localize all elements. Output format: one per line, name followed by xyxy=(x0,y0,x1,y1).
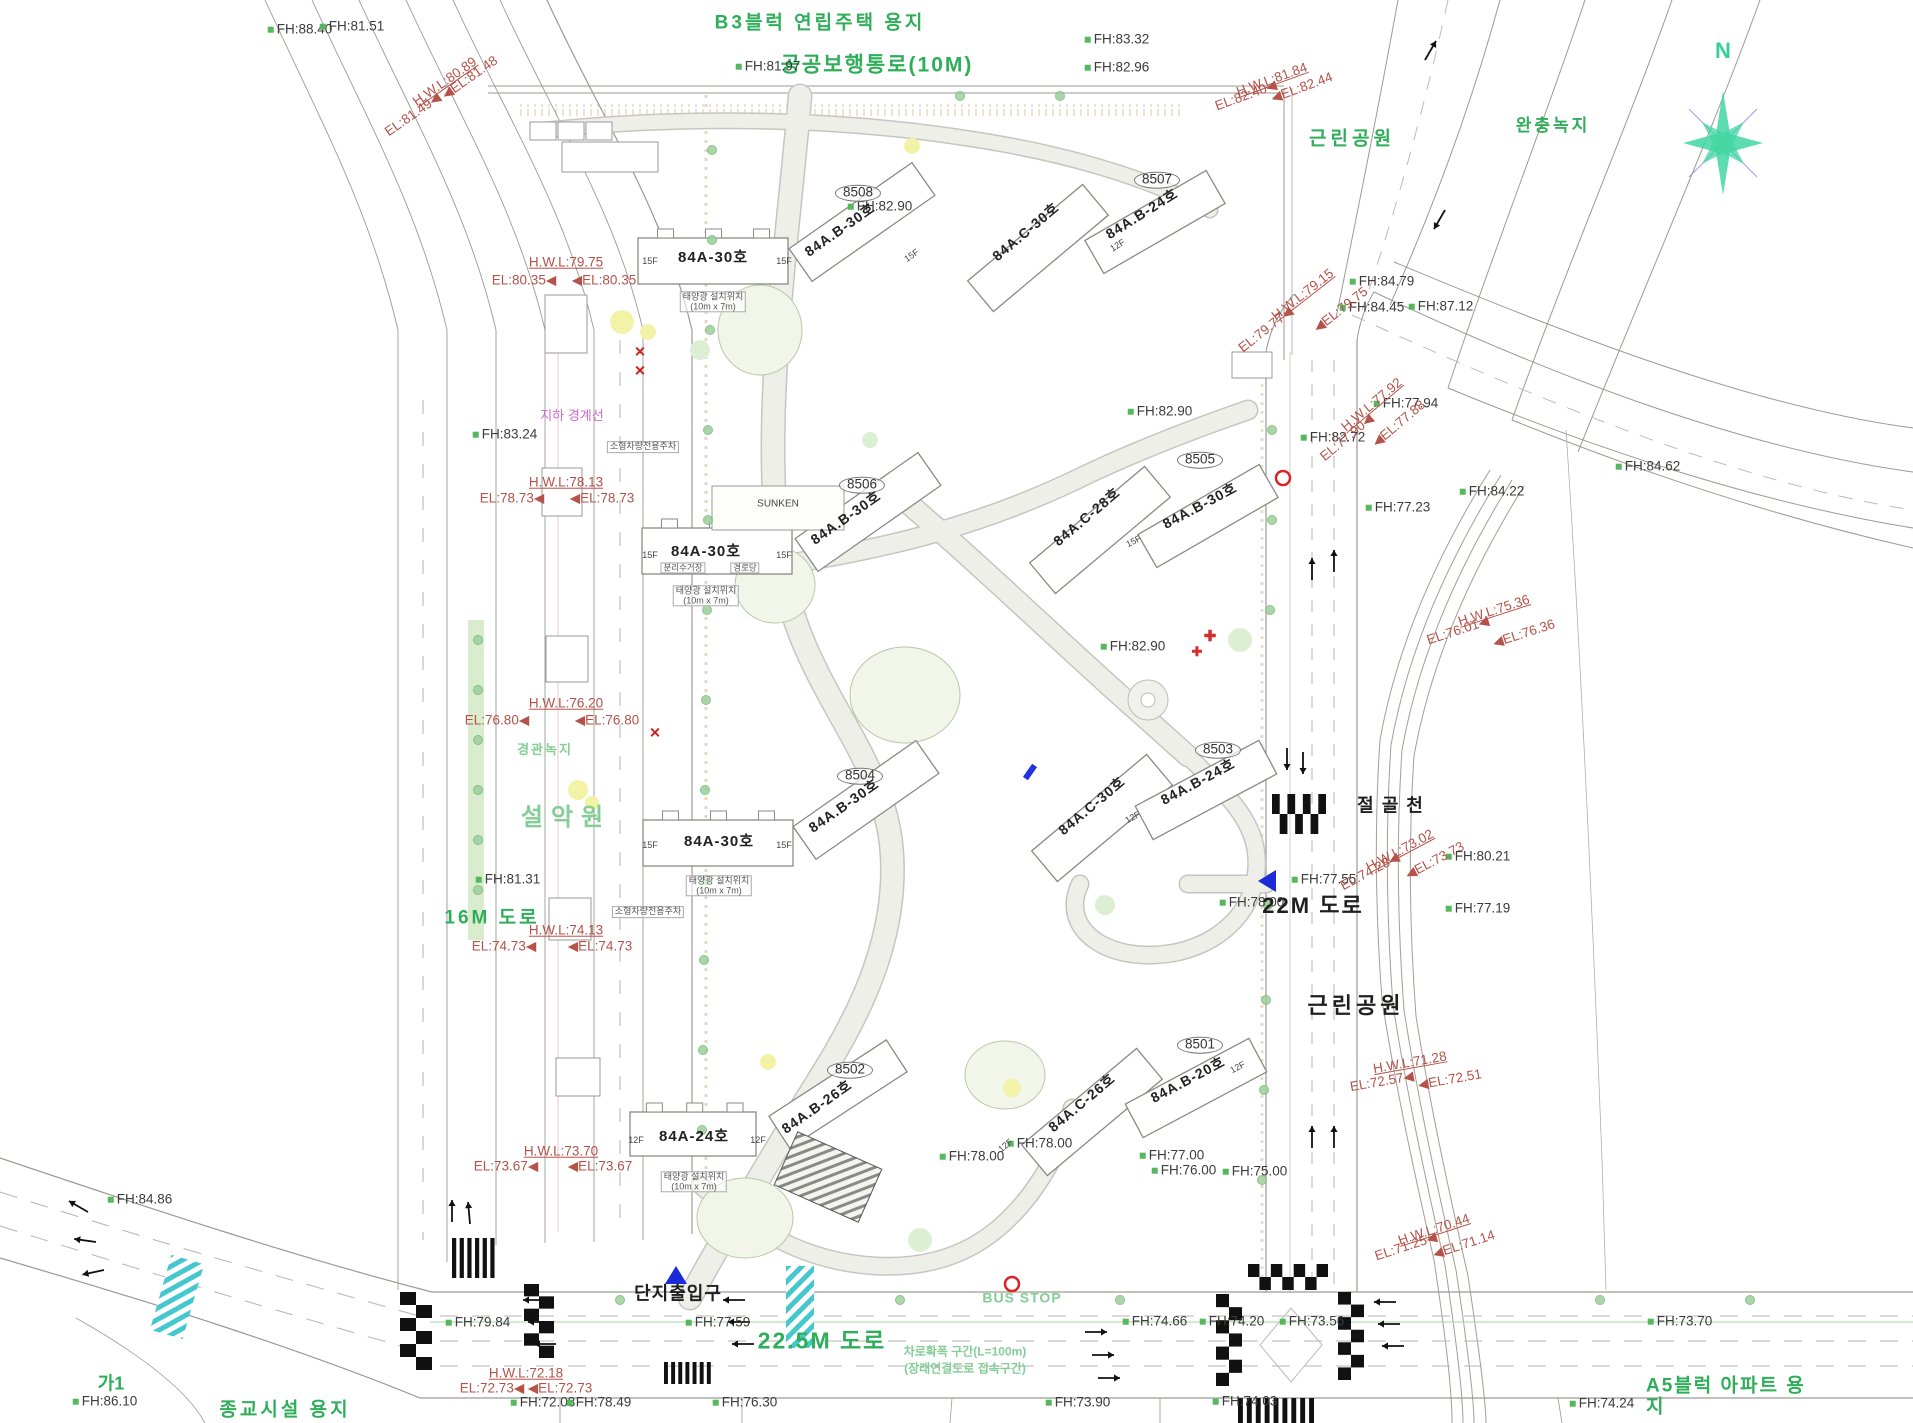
park-boundary-line xyxy=(1566,430,1606,1290)
pedestrian-path-hatch xyxy=(520,104,1180,116)
22m-road xyxy=(1266,292,1374,1292)
site-plan-drawing: N B3블럭 연립주택 용지공공보행통로(10M)근린공원완충녹지근린공원22.… xyxy=(0,0,1913,1423)
site-plan-canvas: N xyxy=(0,0,1913,1423)
north-label: N xyxy=(1715,38,1731,63)
north-compass-icon xyxy=(1683,91,1763,195)
bottom-road xyxy=(0,1158,1913,1398)
stream-jeolgolcheon xyxy=(1376,470,1524,1423)
east-road xyxy=(1330,262,1913,548)
